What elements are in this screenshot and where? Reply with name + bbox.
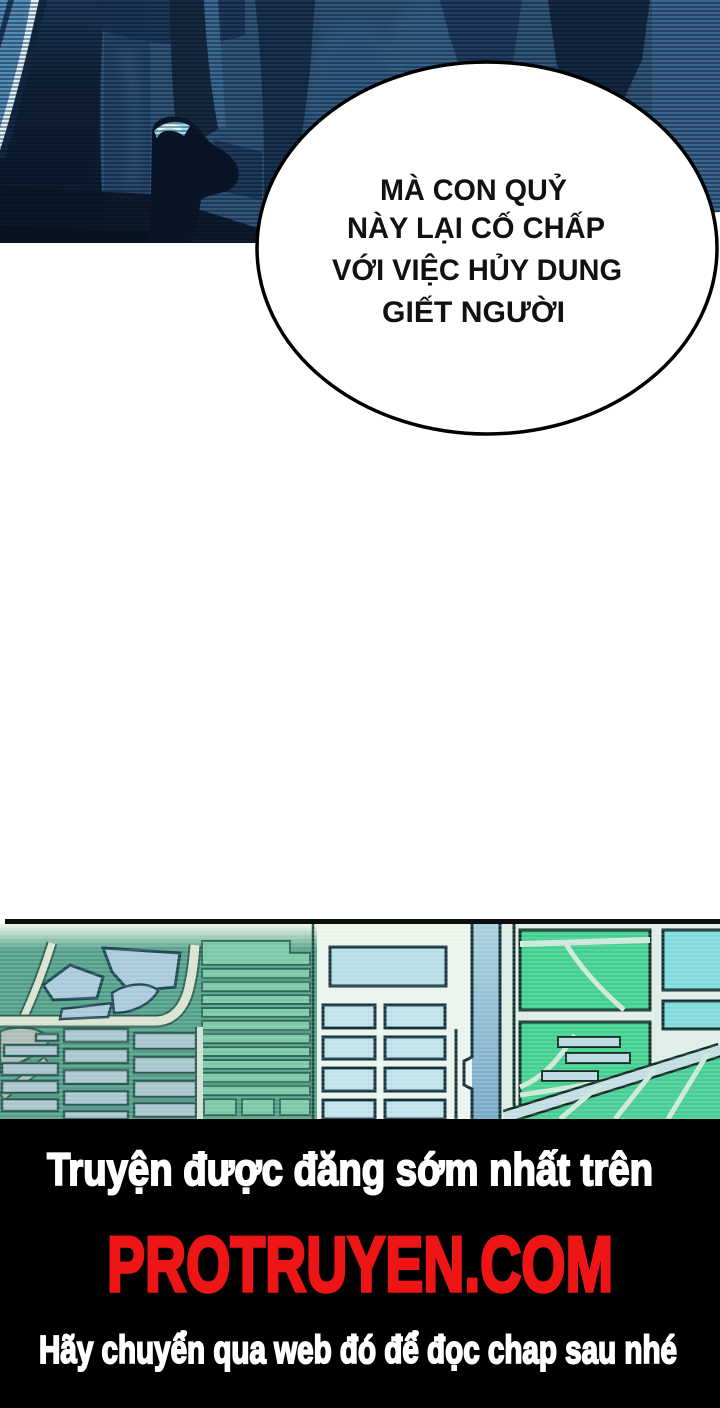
svg-text:MÀ CON QUỶ: MÀ CON QUỶ [380,173,567,207]
svg-text:Truyện được đăng sớm nhất trên: Truyện được đăng sớm nhất trên [47,1144,653,1195]
svg-text:VỚI VIỆC HỦY DUNG: VỚI VIỆC HỦY DUNG [332,253,622,287]
svg-text:PROTRUYEN.COM: PROTRUYEN.COM [107,1220,613,1308]
svg-text:Hãy chuyển qua web đó để đọc c: Hãy chuyển qua web đó để đọc chap sau nh… [39,1329,677,1372]
svg-text:GIẾT NGƯỜI: GIẾT NGƯỜI [382,295,565,329]
svg-text:NÀY LẠI CỐ CHẤP: NÀY LẠI CỐ CHẤP [347,211,605,245]
